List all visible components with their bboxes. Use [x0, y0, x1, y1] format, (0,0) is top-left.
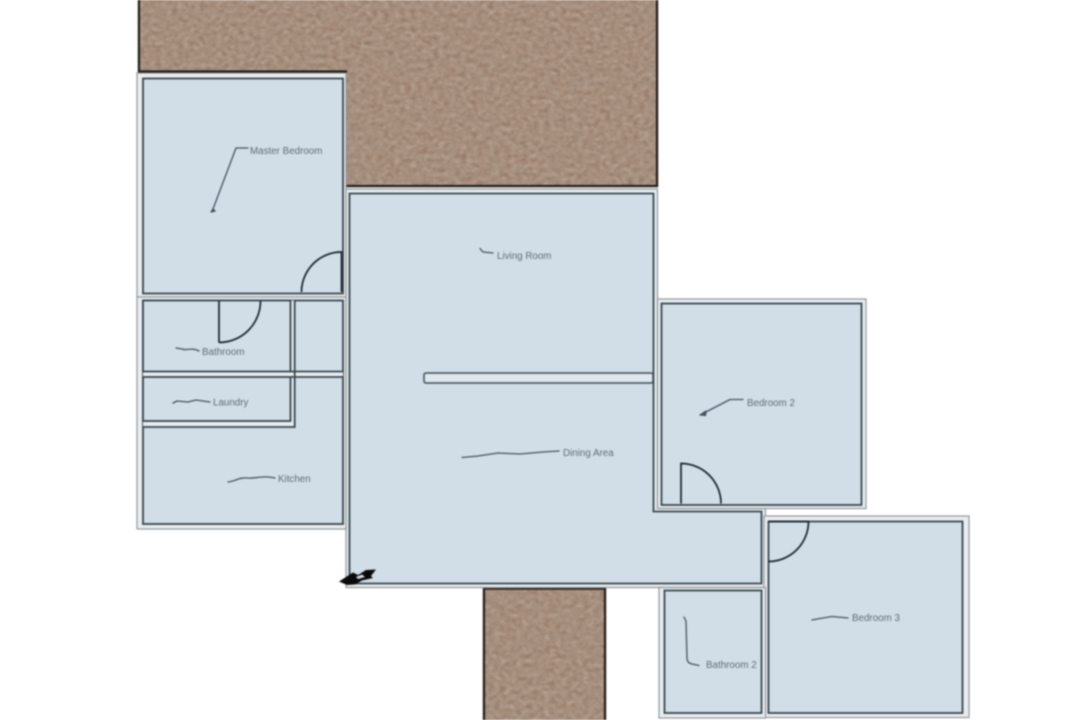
svg-text:Kitchen: Kitchen — [278, 474, 311, 485]
svg-text:Master Bedroom: Master Bedroom — [250, 146, 322, 157]
svg-text:Bathroom 2: Bathroom 2 — [706, 660, 757, 671]
svg-text:Bathroom: Bathroom — [202, 347, 244, 358]
svg-text:Dining Area: Dining Area — [563, 448, 614, 459]
svg-text:Living Room: Living Room — [497, 251, 551, 262]
svg-text:Bedroom 3: Bedroom 3 — [852, 613, 900, 624]
svg-text:Laundry: Laundry — [213, 398, 249, 409]
svg-text:Bedroom 2: Bedroom 2 — [747, 398, 795, 409]
